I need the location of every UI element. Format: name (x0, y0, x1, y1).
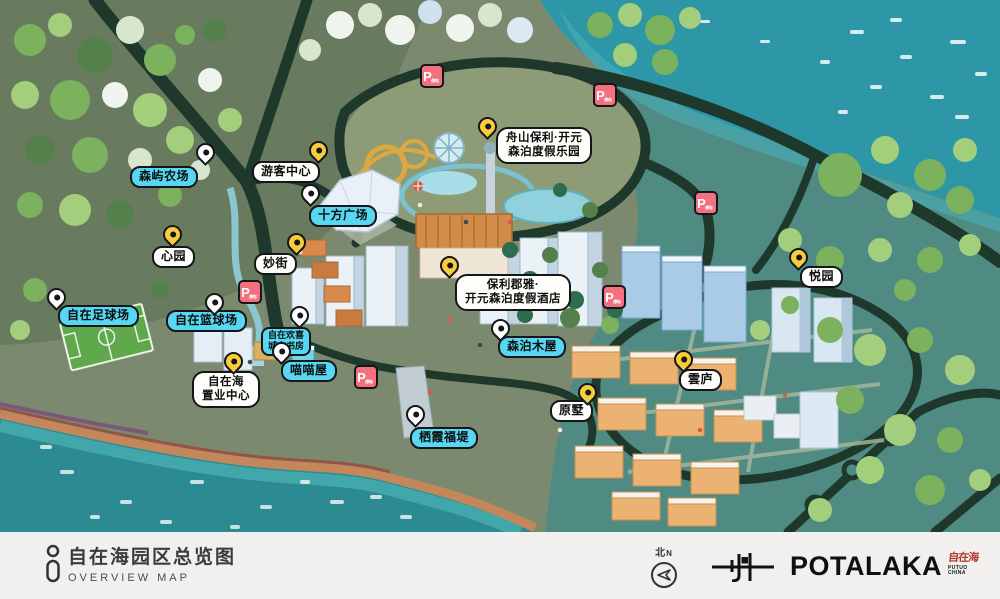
brand-name: POTALAKA (790, 551, 942, 582)
map-title-block: 自在海园区总览图 OVERVIEW MAP (68, 542, 236, 584)
poi-label-senpo-cabin: 森泊木屋 (498, 336, 566, 358)
compass-needle-icon (651, 562, 677, 588)
poi-label-xinyuan: 心园 (152, 246, 195, 268)
poi-label-visitor-center: 游客中心 (252, 161, 320, 183)
info-pin-icon (44, 544, 62, 584)
brand-seal: 自在海 PUTUOCHINA (948, 553, 978, 576)
parking-icon: P停车 (354, 365, 378, 389)
poi-label-yueyuan: 悦园 (800, 266, 843, 288)
parking-icon: P停车 (238, 280, 262, 304)
poi-label-sales-center: 自在海 置业中心 (192, 371, 260, 408)
potalaka-logo-mark (712, 552, 774, 582)
map-area: 森屿农场 游客中心 十方广场 心园 妙街 自在足球场 自在篮球场 (0, 0, 1000, 532)
poi-label-miaomiao-house: 喵喵屋 (281, 360, 337, 382)
map-illustration (0, 0, 1000, 532)
page-title: 自在海园区总览图 (68, 542, 236, 569)
poi-label-miaojie: 妙街 (254, 253, 297, 275)
poi-label-resort-hotel: 保利郡雅· 开元森泊度假酒店 (455, 274, 571, 311)
compass-north-cn: 北 (655, 548, 666, 559)
page-subtitle: OVERVIEW MAP (68, 572, 236, 584)
poi-label-qixia-causeway: 栖霞福堤 (410, 427, 478, 449)
parking-icon: P停车 (602, 285, 626, 309)
poi-label-shifang-square: 十方广场 (309, 205, 377, 227)
poi-label-football-field: 自在足球场 (58, 305, 139, 327)
compass: 北N (646, 544, 682, 588)
poi-label-yunlu: 雲庐 (679, 369, 722, 391)
parking-icon: P停车 (420, 64, 444, 88)
poi-label-resort-park: 舟山保利·开元 森泊度假乐园 (496, 127, 592, 164)
poi-label-senyu-farm: 森屿农场 (130, 166, 198, 188)
compass-north-en: N (666, 549, 673, 558)
parking-icon: P停车 (694, 191, 718, 215)
parking-icon: P停车 (593, 83, 617, 107)
footer-bar: 自在海园区总览图 OVERVIEW MAP 北N POTALAKA 自在海 PU… (0, 532, 1000, 599)
poi-label-basketball-court: 自在篮球场 (166, 310, 247, 332)
overview-map-poster: 森屿农场 游客中心 十方广场 心园 妙街 自在足球场 自在篮球场 (0, 0, 1000, 599)
brand-seal-calligraphy: 自在海 (947, 553, 978, 564)
